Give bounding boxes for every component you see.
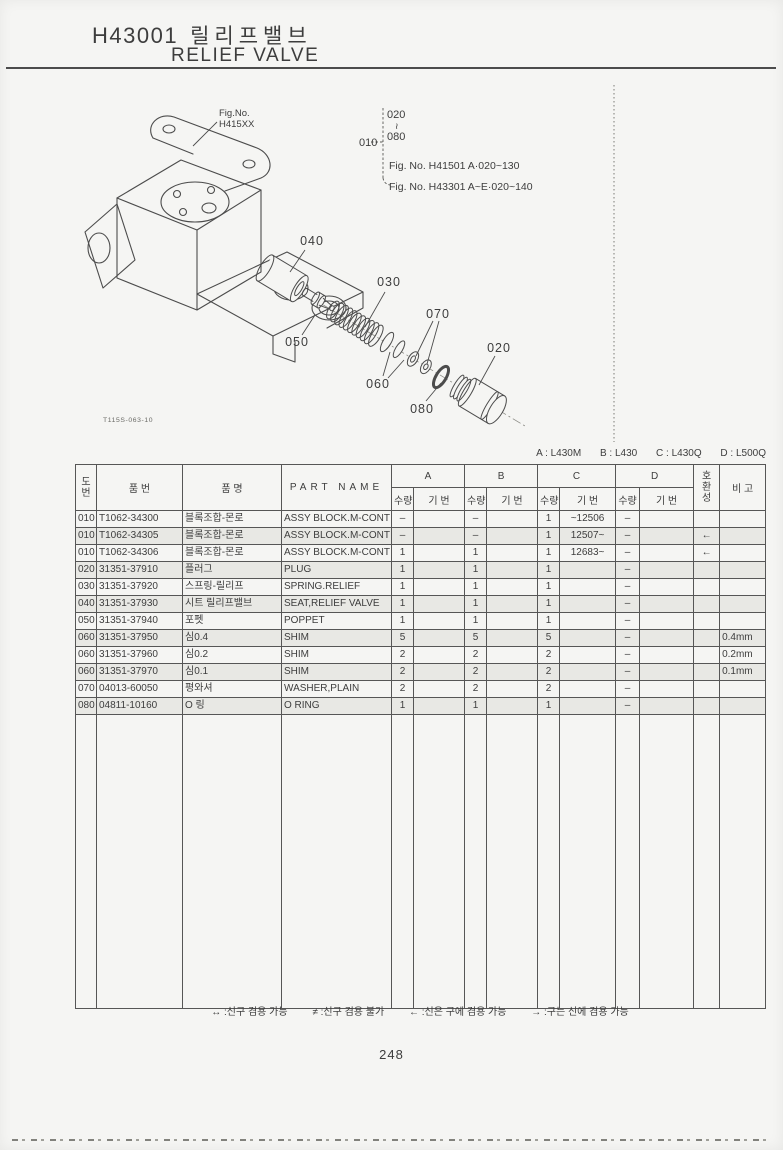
table-row: 010 T1062-34300 블록조합-몬로 ASSY BLOCK.M-CON… (76, 511, 766, 528)
parts-table: 도 번 품 번 품 명 PART NAME A B C D 호 환 성 (75, 464, 766, 1009)
cell-serial-a (414, 698, 465, 715)
cell-qty-c: 5 (538, 630, 560, 647)
cell-compat (694, 681, 720, 698)
cell-qty-d: – (616, 511, 640, 528)
header-fig-no: 도 번 (76, 465, 97, 511)
cell-qty-b: 1 (465, 698, 487, 715)
header-group-a: A (392, 465, 465, 488)
fig-no-value: H415XX (219, 119, 255, 130)
title-underline (6, 67, 776, 69)
header-compat: 호 환 성 (694, 465, 720, 511)
table-row: 060 31351-37960 심0.2 SHIM 2 2 2 – 0.2mm (76, 647, 766, 664)
table-row: 070 04013-60050 평와셔 WASHER,PLAIN 2 2 2 – (76, 681, 766, 698)
cell-compat: ← (694, 528, 720, 545)
cell-serial-b (487, 528, 538, 545)
cell-serial-c (560, 681, 616, 698)
legend-item-3: ← :신은 구에 겸용 가능 (409, 1007, 507, 1018)
header-remark: 비 고 (720, 465, 766, 511)
cell-part-name: ASSY BLOCK.M-CONT (282, 528, 392, 545)
cell-serial-d (640, 562, 694, 579)
model-d: D : L500Q (720, 448, 766, 459)
cell-part-name: SPRING.RELIEF (282, 579, 392, 596)
table-row: 060 31351-37970 심0.1 SHIM 2 2 2 – 0.1mm (76, 664, 766, 681)
serial-note-item: 010 (359, 137, 377, 149)
cell-serial-c (560, 579, 616, 596)
header-serial-c: 기 번 (560, 488, 616, 511)
header-qty-d: 수량 (616, 488, 640, 511)
cell-serial-d (640, 579, 694, 596)
catalog-page: H43001릴리프밸브 RELIEF VALVE (0, 0, 783, 1150)
cell-name-kr: 블록조합-몬로 (183, 528, 282, 545)
cell-qty-a: 5 (392, 630, 414, 647)
cell-serial-d (640, 528, 694, 545)
drawing-code: T115S-063-10 (103, 417, 153, 424)
cell-qty-b: – (465, 528, 487, 545)
cell-serial-b (487, 630, 538, 647)
cell-serial-a (414, 545, 465, 562)
cell-serial-a (414, 630, 465, 647)
cell-qty-a: 2 (392, 664, 414, 681)
cell-qty-a: 1 (392, 545, 414, 562)
part-spring (323, 297, 386, 348)
cell-qty-b: 5 (465, 630, 487, 647)
cell-remark (720, 528, 766, 545)
header-qty-c: 수량 (538, 488, 560, 511)
cell-fig-no: 040 (76, 596, 97, 613)
cell-part-name: ASSY BLOCK.M-CONT (282, 511, 392, 528)
callout-030: 030 (377, 275, 401, 289)
model-b: B : L430 (600, 448, 637, 459)
cell-qty-a: 2 (392, 647, 414, 664)
cell-part-name: ASSY BLOCK.M-CONT (282, 545, 392, 562)
cell-compat (694, 647, 720, 664)
cell-part-number: 31351-37910 (97, 562, 183, 579)
cell-remark: 0.4mm (720, 630, 766, 647)
cell-part-name: SHIM (282, 647, 392, 664)
cell-compat (694, 698, 720, 715)
cell-name-kr: 시트 릴리프밸브 (183, 596, 282, 613)
cell-part-number: T1062-34305 (97, 528, 183, 545)
legend-item-2: ≠ :신구 겸용 불가 (312, 1007, 384, 1018)
cell-serial-b (487, 647, 538, 664)
cell-remark (720, 511, 766, 528)
cell-qty-b: 2 (465, 664, 487, 681)
cell-qty-a: 1 (392, 613, 414, 630)
cell-remark (720, 681, 766, 698)
cell-qty-c: 2 (538, 647, 560, 664)
cell-part-number: 31351-37930 (97, 596, 183, 613)
header-qty-a: 수량 (392, 488, 414, 511)
cell-qty-b: 1 (465, 579, 487, 596)
cell-name-kr: 블록조합-몬로 (183, 511, 282, 528)
table-row: 060 31351-37950 심0.4 SHIM 5 5 5 – 0.4mm (76, 630, 766, 647)
header-serial-b: 기 번 (487, 488, 538, 511)
header-name-kr: 품 명 (183, 465, 282, 511)
parts-table-wrap: 도 번 품 번 품 명 PART NAME A B C D 호 환 성 (75, 464, 766, 1009)
parts-table-body: 010 T1062-34300 블록조합-몬로 ASSY BLOCK.M-CON… (76, 511, 766, 715)
cell-compat (694, 596, 720, 613)
cell-remark (720, 579, 766, 596)
cell-part-number: 04013-60050 (97, 681, 183, 698)
cell-compat: ← (694, 545, 720, 562)
header-group-d: D (616, 465, 694, 488)
part-shims (378, 331, 408, 361)
cell-fig-no: 030 (76, 579, 97, 596)
table-row: 030 31351-37920 스프링-릴리프 SPRING.RELIEF 1 … (76, 579, 766, 596)
header-group-b: B (465, 465, 538, 488)
cell-part-number: 31351-37920 (97, 579, 183, 596)
callout-050: 050 (285, 335, 309, 349)
model-codes-note: A : L430M B : L430 C : L430Q D : L500Q (520, 448, 766, 459)
cell-part-number: 31351-37950 (97, 630, 183, 647)
part-plug (446, 371, 510, 427)
cell-qty-b: 1 (465, 545, 487, 562)
cell-qty-a: 1 (392, 562, 414, 579)
cell-qty-a: 1 (392, 698, 414, 715)
header-serial-a: 기 번 (414, 488, 465, 511)
cell-remark (720, 562, 766, 579)
cell-compat (694, 664, 720, 681)
cell-name-kr: 플러그 (183, 562, 282, 579)
model-c: C : L430Q (656, 448, 702, 459)
part-oring (431, 364, 452, 390)
cell-qty-c: 1 (538, 579, 560, 596)
cell-part-number: T1062-34300 (97, 511, 183, 528)
cell-serial-c (560, 647, 616, 664)
cell-fig-no: 020 (76, 562, 97, 579)
callout-080: 080 (410, 402, 434, 416)
cell-compat (694, 511, 720, 528)
cell-qty-c: 1 (538, 698, 560, 715)
table-row: 010 T1062-34305 블록조합-몬로 ASSY BLOCK.M-CON… (76, 528, 766, 545)
cell-serial-a (414, 681, 465, 698)
cell-remark (720, 698, 766, 715)
table-row: 040 31351-37930 시트 릴리프밸브 SEAT,RELIEF VAL… (76, 596, 766, 613)
cell-serial-d (640, 630, 694, 647)
header-part-no: 품 번 (97, 465, 183, 511)
cell-qty-c: 1 (538, 613, 560, 630)
cell-fig-no: 060 (76, 664, 97, 681)
cell-qty-d: – (616, 647, 640, 664)
table-row: 050 31351-37940 포펫 POPPET 1 1 1 – (76, 613, 766, 630)
cell-qty-d: – (616, 545, 640, 562)
cell-name-kr: 심0.2 (183, 647, 282, 664)
cell-qty-b: 1 (465, 562, 487, 579)
cell-remark: 0.2mm (720, 647, 766, 664)
cell-fig-no: 060 (76, 647, 97, 664)
serial-note-tilde: ~ (390, 123, 402, 129)
cell-serial-c (560, 613, 616, 630)
cell-qty-c: 2 (538, 664, 560, 681)
table-empty-space (76, 715, 766, 1009)
cell-serial-a (414, 562, 465, 579)
cell-qty-d: – (616, 528, 640, 545)
cell-remark: 0.1mm (720, 664, 766, 681)
cell-remark (720, 545, 766, 562)
legend-item-1: ↔ :신구 겸용 가능 (211, 1007, 287, 1018)
cell-compat (694, 630, 720, 647)
cell-qty-a: – (392, 528, 414, 545)
table-row: 010 T1062-34306 블록조합-몬로 ASSY BLOCK.M-CON… (76, 545, 766, 562)
cell-serial-c: 12507~ (560, 528, 616, 545)
cell-serial-d (640, 511, 694, 528)
cell-compat (694, 579, 720, 596)
cell-fig-no: 080 (76, 698, 97, 715)
cell-qty-d: – (616, 613, 640, 630)
cell-part-name: POPPET (282, 613, 392, 630)
cell-serial-d (640, 664, 694, 681)
cell-part-name: SHIM (282, 630, 392, 647)
cell-serial-a (414, 613, 465, 630)
serial-note-ref-1: Fig. No. H41501 A·020~130 (389, 160, 520, 172)
callout-040: 040 (300, 234, 324, 248)
serial-note-ref-2: Fig. No. H43301 A~E·020~140 (389, 181, 533, 193)
cell-serial-d (640, 647, 694, 664)
title-code: H43001 (92, 23, 178, 48)
cell-serial-d (640, 681, 694, 698)
cell-serial-c: 12683~ (560, 545, 616, 562)
cell-name-kr: 블록조합-몬로 (183, 545, 282, 562)
cell-qty-a: 2 (392, 681, 414, 698)
cell-qty-d: – (616, 698, 640, 715)
callout-060: 060 (366, 377, 390, 391)
cell-name-kr: 포펫 (183, 613, 282, 630)
cell-serial-c (560, 596, 616, 613)
header-qty-b: 수량 (465, 488, 487, 511)
cell-compat (694, 562, 720, 579)
cell-name-kr: 스프링-릴리프 (183, 579, 282, 596)
cell-part-name: PLUG (282, 562, 392, 579)
cell-qty-c: 1 (538, 545, 560, 562)
cell-serial-a (414, 511, 465, 528)
cell-serial-b (487, 596, 538, 613)
callout-020: 020 (487, 341, 511, 355)
cell-qty-a: 1 (392, 596, 414, 613)
cell-qty-d: – (616, 596, 640, 613)
cell-serial-c (560, 562, 616, 579)
cell-name-kr: 심0.4 (183, 630, 282, 647)
cell-serial-b (487, 562, 538, 579)
cell-qty-c: 2 (538, 681, 560, 698)
cell-part-number: 31351-37940 (97, 613, 183, 630)
cell-fig-no: 060 (76, 630, 97, 647)
cell-fig-no: 010 (76, 545, 97, 562)
cell-qty-b: 1 (465, 613, 487, 630)
cell-fig-no: 010 (76, 511, 97, 528)
cell-serial-c: ~12506 (560, 511, 616, 528)
cell-serial-a (414, 579, 465, 596)
cell-serial-c (560, 698, 616, 715)
relief-valve-drawing: 040 030 070 050 020 060 080 Fig.No. H415… (75, 80, 725, 470)
cell-qty-b: 2 (465, 681, 487, 698)
cell-part-name: O RING (282, 698, 392, 715)
serial-note: 010 020 ~ 080 Fig. No. H41501 A·020~130 … (359, 108, 533, 193)
header-part-name: PART NAME (282, 465, 392, 511)
parts-table-header: 도 번 품 번 품 명 PART NAME A B C D 호 환 성 (76, 465, 766, 511)
exploded-view-diagram: 040 030 070 050 020 060 080 Fig.No. H415… (75, 80, 725, 470)
cell-fig-no: 050 (76, 613, 97, 630)
scan-edge-artifact (12, 1139, 769, 1141)
cell-qty-d: – (616, 562, 640, 579)
cell-qty-c: 1 (538, 562, 560, 579)
compat-legend: ↔ :신구 겸용 가능 ≠ :신구 겸용 불가 ← :신은 구에 겸용 가능 →… (75, 1003, 765, 1018)
legend-item-4: → :구는 신에 겸용 가능 (531, 1007, 629, 1018)
cell-serial-d (640, 613, 694, 630)
header-group-c: C (538, 465, 616, 488)
cell-remark (720, 596, 766, 613)
cell-serial-c (560, 630, 616, 647)
cell-qty-d: – (616, 579, 640, 596)
cell-serial-a (414, 596, 465, 613)
cell-serial-b (487, 664, 538, 681)
cell-qty-a: – (392, 511, 414, 528)
cell-serial-b (487, 698, 538, 715)
cell-qty-c: 1 (538, 596, 560, 613)
cell-qty-d: – (616, 681, 640, 698)
cell-serial-d (640, 698, 694, 715)
cell-part-name: WASHER,PLAIN (282, 681, 392, 698)
serial-note-range-end: 080 (387, 131, 405, 143)
cell-part-name: SEAT,RELIEF VALVE (282, 596, 392, 613)
cell-serial-c (560, 664, 616, 681)
cell-fig-no: 010 (76, 528, 97, 545)
cell-name-kr: 평와셔 (183, 681, 282, 698)
header-serial-d: 기 번 (640, 488, 694, 511)
cell-compat (694, 613, 720, 630)
table-row: 020 31351-37910 플러그 PLUG 1 1 1 – (76, 562, 766, 579)
model-a: A : L430M (536, 448, 581, 459)
cell-part-number: 31351-37960 (97, 647, 183, 664)
cell-serial-b (487, 545, 538, 562)
cell-qty-d: – (616, 664, 640, 681)
cell-qty-c: 1 (538, 511, 560, 528)
cell-remark (720, 613, 766, 630)
cell-qty-c: 1 (538, 528, 560, 545)
cell-qty-b: – (465, 511, 487, 528)
cell-serial-a (414, 664, 465, 681)
table-row: 080 04811-10160 O 링 O RING 1 1 1 – (76, 698, 766, 715)
cell-part-number: T1062-34306 (97, 545, 183, 562)
cell-serial-a (414, 528, 465, 545)
callout-070: 070 (426, 307, 450, 321)
cell-serial-a (414, 647, 465, 664)
cell-qty-b: 1 (465, 596, 487, 613)
cell-name-kr: O 링 (183, 698, 282, 715)
cell-serial-b (487, 511, 538, 528)
cell-part-number: 31351-37970 (97, 664, 183, 681)
title-english: RELIEF VALVE (171, 45, 319, 67)
fig-no-label: Fig.No. (219, 108, 250, 119)
cell-serial-d (640, 545, 694, 562)
cell-part-number: 04811-10160 (97, 698, 183, 715)
cell-name-kr: 심0.1 (183, 664, 282, 681)
cell-qty-d: – (616, 630, 640, 647)
cell-serial-d (640, 596, 694, 613)
cell-fig-no: 070 (76, 681, 97, 698)
cell-qty-a: 1 (392, 579, 414, 596)
serial-note-range-start: 020 (387, 109, 405, 121)
page-number: 248 (0, 1047, 783, 1062)
cell-serial-b (487, 613, 538, 630)
cell-serial-b (487, 579, 538, 596)
cell-serial-b (487, 681, 538, 698)
cell-part-name: SHIM (282, 664, 392, 681)
cell-qty-b: 2 (465, 647, 487, 664)
part-poppet (300, 285, 338, 315)
